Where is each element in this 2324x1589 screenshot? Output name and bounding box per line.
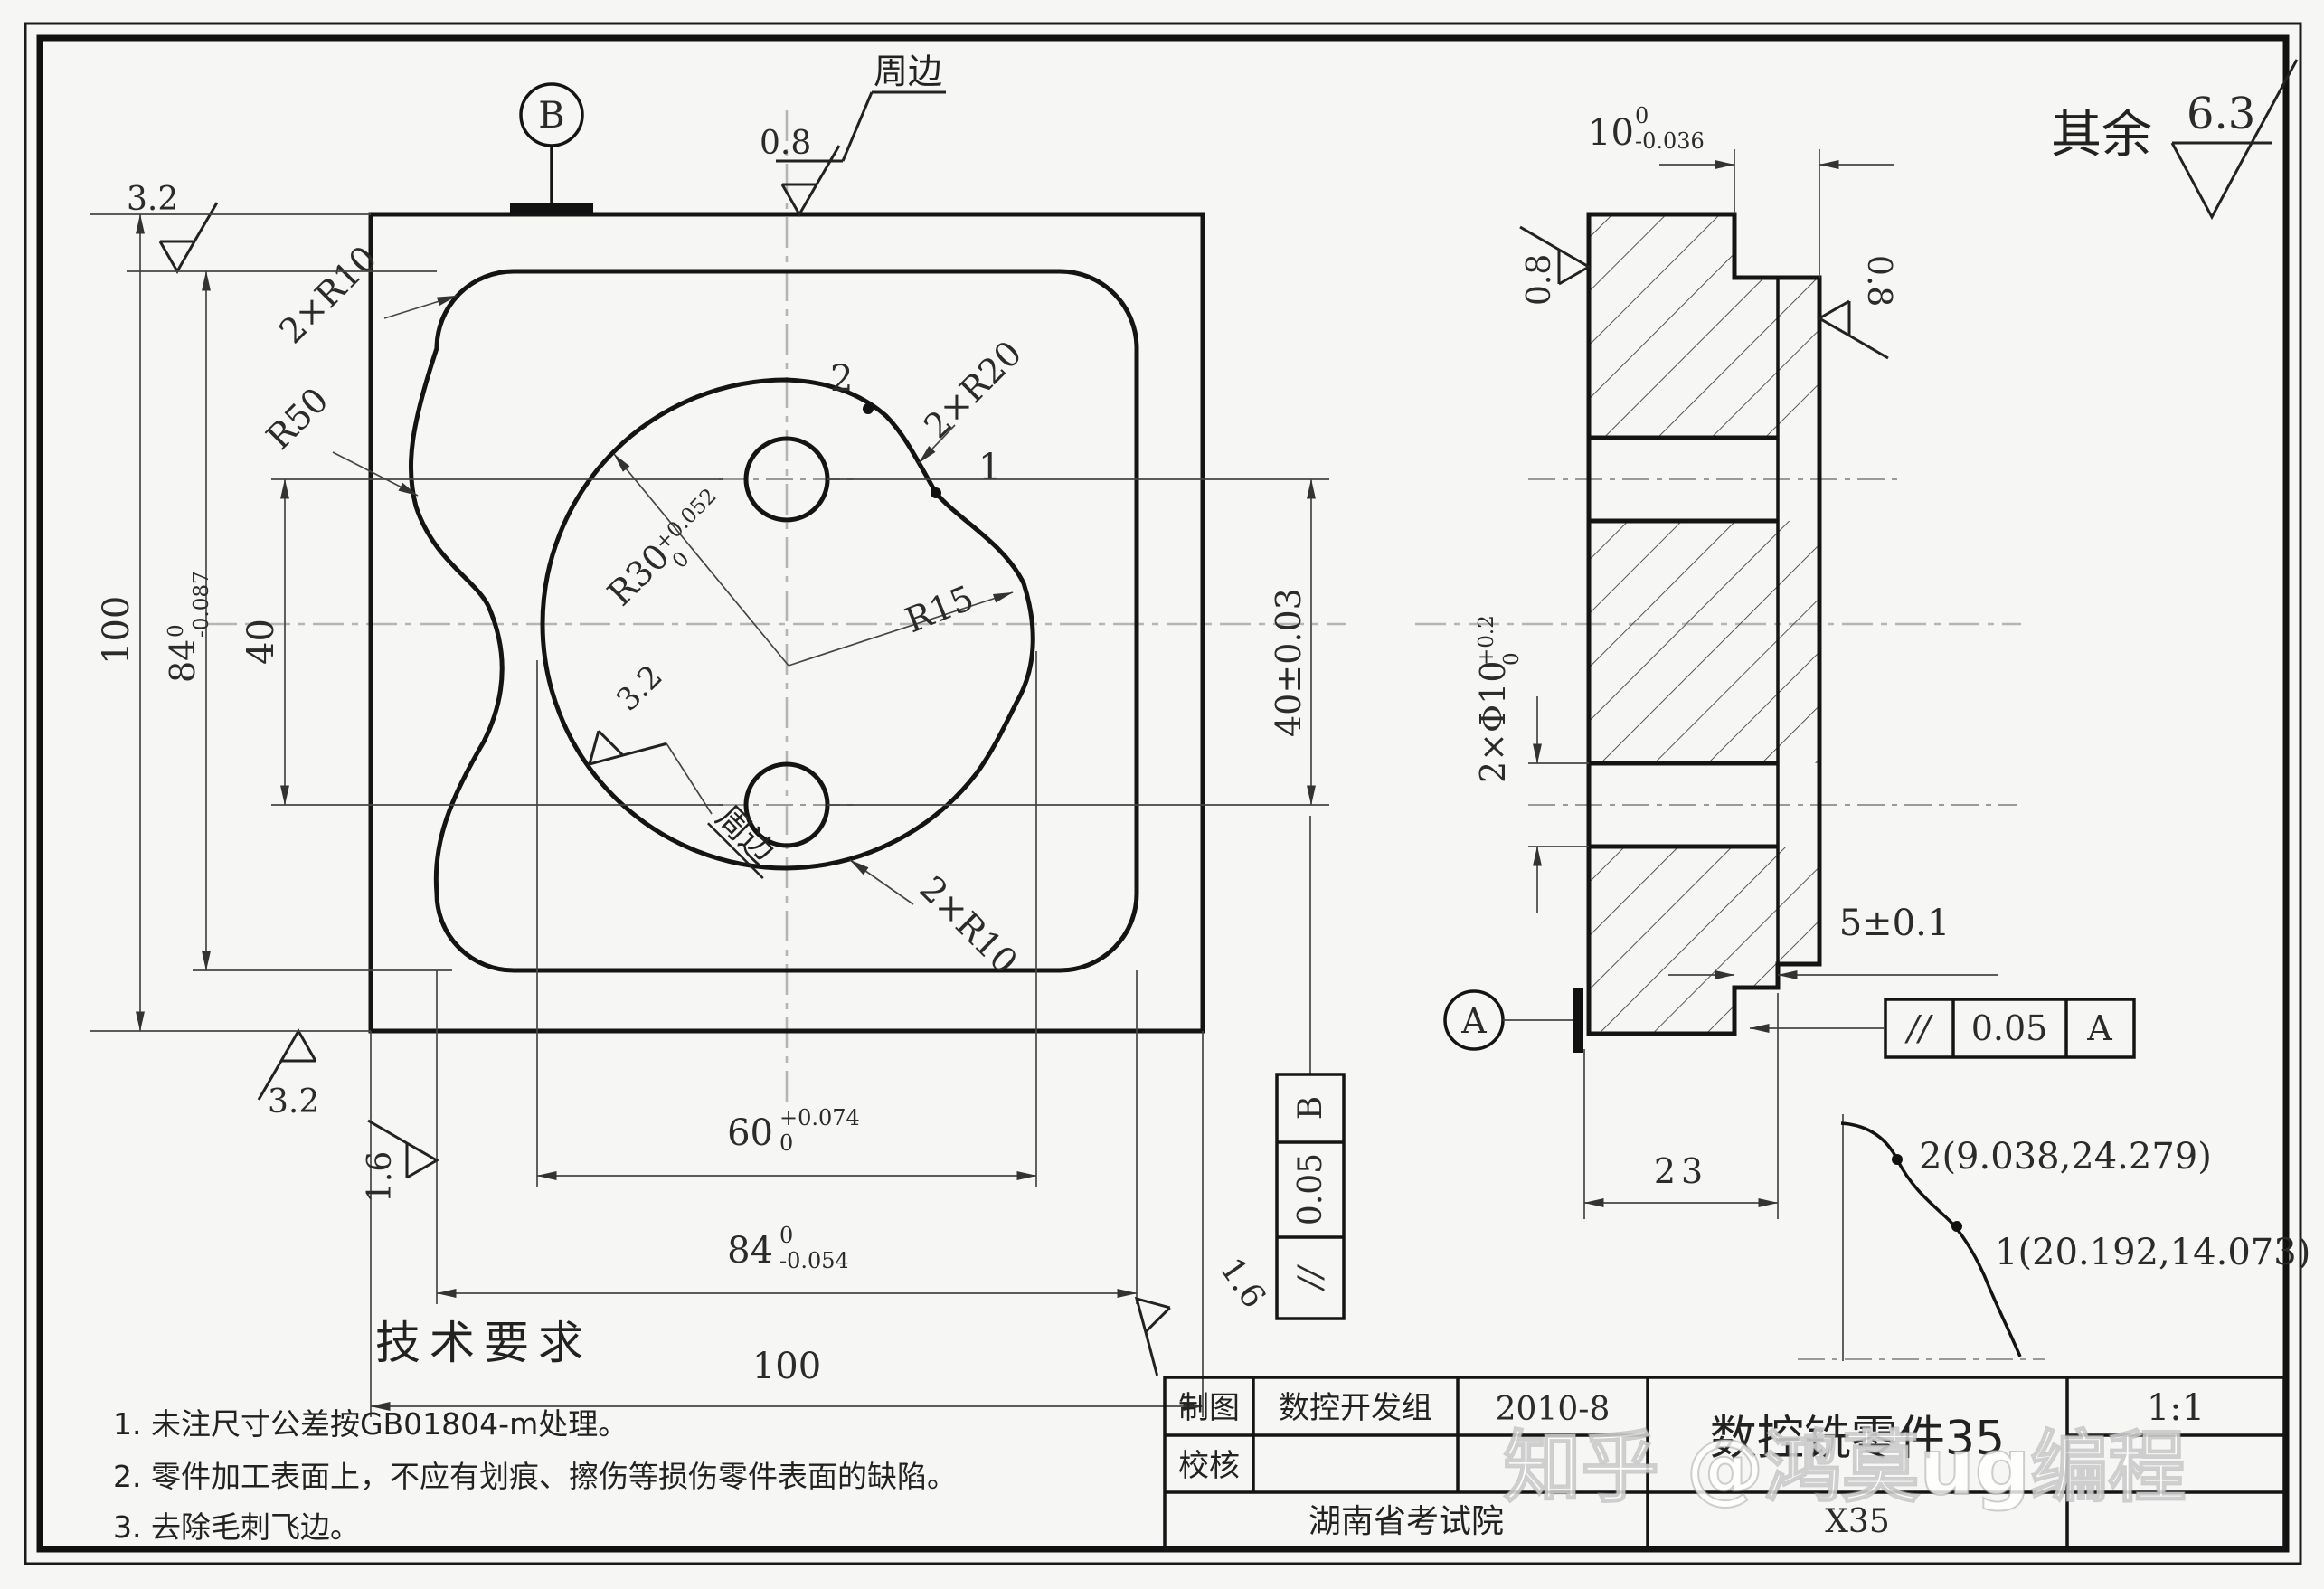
radius-labels: 2×R10 R50 R30 +0.052 0 R15 2×R20 2×R10	[259, 238, 1029, 981]
section-view: 10 0 -0.036 0.8 0.8 2×Φ10 +0.2 0	[1415, 103, 2310, 1361]
sec-sf-left: 0.8	[1521, 254, 1558, 306]
hatch-middle	[1589, 521, 1819, 763]
fcf-a-symbol: //	[1904, 1008, 1933, 1048]
r50-label: R50	[259, 380, 336, 458]
point-1-label: 1	[978, 447, 1001, 488]
sec-sf-right: 0.8	[1860, 255, 1897, 307]
inner-roughness-leader	[666, 743, 712, 814]
fcf-a: // 0.05 A	[1750, 999, 2134, 1057]
fcf-b-datum: B	[1292, 1096, 1329, 1120]
curve-point-2	[1892, 1154, 1903, 1165]
datum-a-label: A	[1460, 1001, 1487, 1041]
pocket-outline	[411, 271, 1137, 970]
note-1: 1. 未注尺寸公差按GB01804-m处理。	[113, 1406, 628, 1442]
sec-roughness-left: 0.8	[1520, 227, 1589, 306]
hatch-bottom	[1589, 847, 1819, 1034]
dim-60-sub: 0	[779, 1130, 793, 1156]
bottom-roughness-left: 1.6	[362, 1121, 437, 1203]
dim-holes-value: 2×Φ10	[1473, 660, 1513, 783]
rest-value: 6.3	[2187, 89, 2255, 139]
sf-16-left: 1.6	[362, 1151, 399, 1203]
tb-drafter-label: 制图	[1178, 1390, 1240, 1426]
bottomleft-roughness: 3.2	[259, 1031, 319, 1121]
dim-5-value: 5±0.1	[1839, 903, 1951, 944]
r30-sup: +0.052	[650, 484, 722, 555]
technical-notes: 技术要求 1. 未注尺寸公差按GB01804-m处理。 2. 零件加工表面上，不…	[113, 1317, 957, 1545]
roughness-icon	[578, 704, 666, 792]
dim-84-left: 84	[163, 639, 203, 683]
curve-point-1	[1951, 1221, 1962, 1232]
point-1-dot	[931, 487, 941, 498]
r20-label: 2×R20	[916, 333, 1029, 446]
hatch-top	[1589, 214, 1819, 438]
fcf-b-tol: 0.05	[1292, 1153, 1329, 1225]
point-2-label: 2	[830, 358, 853, 400]
dim-holes-sub: 0	[1500, 652, 1524, 666]
bottomleft-roughness-value: 3.2	[268, 1083, 319, 1121]
dim-84b-sup: 0	[779, 1223, 793, 1248]
engineering-drawing: 其余 6.3 2 1 2×R10 R50 R	[0, 0, 2324, 1589]
datum-b-label: B	[538, 95, 564, 137]
dim-holes-sup: +0.2	[1475, 615, 1498, 666]
inner-roughness-value: 3.2	[609, 658, 670, 719]
dim-60-sup: +0.074	[779, 1105, 860, 1130]
tb-drafter: 数控开发组	[1279, 1390, 1432, 1426]
dim-60: 60	[727, 1112, 773, 1154]
detail-curve: 2(9.038,24.279) 1(20.192,14.073)	[1798, 1114, 2310, 1361]
dim-100b: 100	[752, 1346, 821, 1387]
fcf-b-symbol: //	[1292, 1263, 1329, 1291]
dim-10-sup: 0	[1635, 103, 1649, 128]
tb-checker-label: 校核	[1178, 1448, 1240, 1484]
dim-84b: 84	[727, 1230, 773, 1272]
note-3: 3. 去除毛刺飞边。	[113, 1509, 360, 1545]
roughness-icon	[1109, 1287, 1197, 1376]
datum-target-b: B	[510, 84, 593, 213]
bottom-roughness-right: 1.6	[1109, 1252, 1272, 1376]
right-dimension: 40±0.03	[827, 479, 1329, 1074]
r50-leader	[333, 452, 418, 496]
dim-84b-sub: -0.054	[779, 1248, 849, 1273]
datum-a: A	[1445, 988, 1583, 1053]
dim-holes: 2×Φ10 +0.2 0	[1473, 615, 1589, 913]
general-roughness: 其余 6.3	[2051, 60, 2297, 217]
left-dimensions: 100 84 0 -0.087 40	[90, 214, 723, 1031]
top-roughness-value: 0.8	[760, 125, 811, 162]
point-2-coord: 2(9.038,24.279)	[1919, 1136, 2212, 1178]
dim-84-left-sub: -0.087	[190, 571, 213, 638]
roughness-icon	[1819, 301, 1888, 358]
r10-bottom-leader	[850, 860, 913, 904]
drawing-sheet: 其余 6.3 2 1 2×R10 R50 R	[0, 0, 2324, 1589]
note-2: 2. 零件加工表面上，不应有划痕、擦伤等损伤零件表面的缺陷。	[113, 1459, 957, 1494]
dim-23-value: 23	[1654, 1151, 1708, 1191]
top-zone-label: 周边	[874, 52, 942, 91]
fcf-a-tol: 0.05	[1971, 1008, 2048, 1048]
dim-10-value: 10	[1588, 112, 1634, 154]
dim-10-sub: -0.036	[1635, 128, 1705, 154]
dim-100-left: 100	[96, 596, 137, 665]
notes-heading: 技术要求	[375, 1317, 592, 1369]
dim-40-left: 40	[241, 619, 282, 665]
fcf-b: B 0.05 //	[1277, 1074, 1344, 1319]
r10-top-label: 2×R10	[271, 238, 384, 351]
watermark: 知乎 @鸿莫ug编程	[1504, 1423, 2187, 1513]
point-2-dot	[863, 403, 874, 414]
sf-16-right: 1.6	[1213, 1252, 1272, 1315]
r15-label: R15	[900, 578, 979, 641]
topleft-roughness-value: 3.2	[127, 181, 178, 218]
main-view: 2 1 2×R10 R50 R30 +0.052 0 R15 2×R20 2×R…	[90, 52, 1346, 1417]
r10-bottom-label: 2×R10	[912, 868, 1025, 981]
dim-40-right: 40±0.03	[1269, 588, 1308, 737]
tb-org: 湖南省考试院	[1308, 1503, 1504, 1540]
point-1-coord: 1(20.192,14.073)	[1995, 1232, 2310, 1273]
dim-84-left-sup: 0	[165, 624, 188, 638]
sec-roughness-right: 0.8	[1819, 255, 1897, 358]
rest-label: 其余	[2051, 106, 2152, 165]
fcf-a-datum: A	[2086, 1008, 2112, 1048]
